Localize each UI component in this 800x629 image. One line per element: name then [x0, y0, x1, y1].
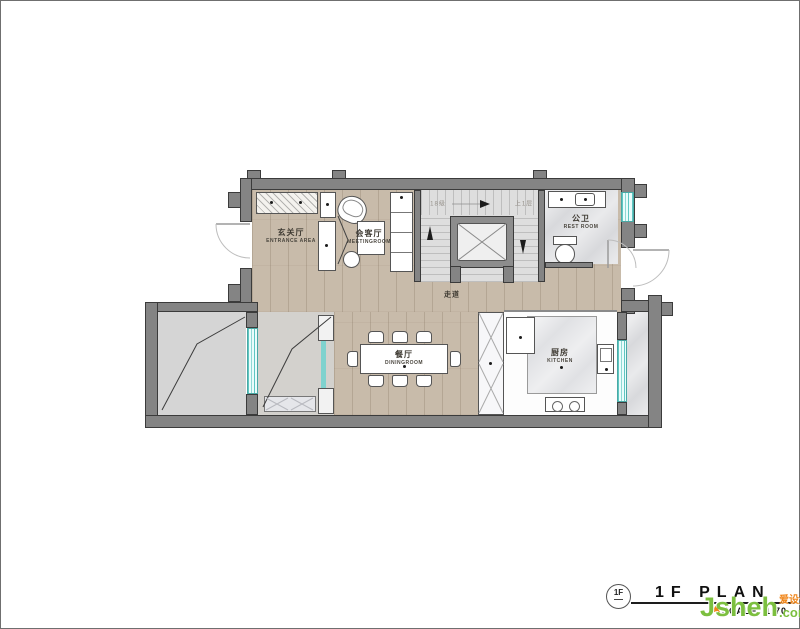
label-restroom-en: REST ROOM — [564, 224, 599, 230]
window-kitchen — [617, 340, 627, 402]
wall-bottom — [145, 415, 662, 428]
dining-chair — [368, 375, 384, 387]
dining-chair — [368, 331, 384, 343]
window-restroom — [621, 192, 634, 222]
label-corridor: 走道 — [444, 292, 460, 301]
pilaster — [332, 170, 346, 179]
label-restroom: 公卫 REST ROOM — [564, 214, 599, 230]
label-entrance-cn: 玄关厅 — [266, 228, 316, 238]
meeting-stool — [343, 251, 360, 268]
wall-lower-left-top — [145, 302, 258, 312]
door-arc-entrance — [216, 224, 250, 258]
stair-up-note: 上1层 — [515, 199, 533, 208]
cabinet-dot — [325, 244, 328, 247]
elevator-jamb-left — [450, 266, 461, 283]
door-arc-right — [633, 250, 669, 286]
cabinet-dot — [489, 362, 492, 365]
label-restroom-cn: 公卫 — [564, 214, 599, 224]
wall-kitchen-window-bottom — [617, 402, 627, 415]
wall-window-jamb — [246, 312, 258, 328]
wall-top — [240, 178, 635, 190]
shelf-dot — [400, 196, 403, 199]
pilaster — [247, 170, 261, 179]
bubble-divider — [614, 599, 623, 600]
cabinet-dot — [326, 203, 329, 206]
label-kitchen-en: KITCHEN — [547, 358, 573, 364]
glass-partition — [321, 341, 326, 388]
dining-chair — [416, 331, 432, 343]
column — [318, 315, 334, 341]
dining-chair — [450, 351, 461, 367]
wall-left-lower — [145, 302, 158, 428]
closet-dot — [270, 201, 273, 204]
pilaster — [533, 170, 547, 179]
wall-left-upper-a — [240, 178, 252, 222]
wall-kitchen-window-top — [617, 312, 627, 340]
plan-number-bubble: 1F — [606, 584, 631, 609]
label-meeting-en: MEETINGROOM — [347, 239, 391, 245]
wall-right-lower — [648, 295, 662, 428]
toilet-bowl — [555, 244, 575, 264]
label-corridor-cn: 走道 — [444, 292, 460, 301]
watermark-suffix: .com — [779, 606, 800, 619]
dining-chair — [392, 331, 408, 343]
kitchen-dot — [560, 366, 563, 369]
label-dining: 餐厅 DININGROOM — [385, 350, 423, 366]
dining-chair — [347, 351, 358, 367]
bench — [264, 396, 316, 412]
sink-dot — [584, 198, 587, 201]
bookshelf — [390, 192, 413, 272]
label-dining-cn: 餐厅 — [385, 350, 423, 360]
column — [318, 388, 334, 414]
pilaster — [228, 284, 241, 302]
wall-stair-left — [414, 190, 421, 282]
stair-steps-note: 18级 — [430, 199, 446, 208]
label-entrance-en: ENTRANCE AREA — [266, 238, 316, 244]
watermark: Jsheh 爱设汇 .com — [700, 596, 800, 619]
pilaster — [228, 192, 241, 208]
dining-chair — [392, 375, 408, 387]
label-dining-en: DININGROOM — [385, 360, 423, 366]
kitchen-partition-line — [504, 310, 617, 312]
plan-number: 1F — [607, 588, 630, 597]
label-meeting: 会客厅 MEETINGROOM — [347, 229, 391, 245]
sink-dot — [605, 368, 608, 371]
fridge-dot — [519, 336, 522, 339]
elevator-jamb-right — [503, 266, 514, 283]
wall-stair-right — [538, 190, 545, 282]
label-kitchen: 厨房 KITCHEN — [547, 348, 573, 364]
drawing-canvas: 玄关厅 ENTRANCE AREA 会客厅 MEETINGROOM 公卫 RES… — [0, 0, 800, 629]
pilaster — [634, 184, 647, 198]
dining-chair — [416, 375, 432, 387]
label-meeting-cn: 会客厅 — [347, 229, 391, 239]
vanity-dot — [560, 198, 563, 201]
elevator-car — [457, 223, 507, 261]
wall-window-jamb — [246, 394, 258, 415]
label-kitchen-cn: 厨房 — [547, 348, 573, 358]
wall-restroom-bottom — [545, 262, 593, 268]
pilaster — [661, 302, 673, 316]
floor-right-terrace — [627, 312, 648, 415]
label-entrance: 玄关厅 ENTRANCE AREA — [266, 228, 316, 244]
floor-left-room — [158, 312, 246, 415]
entrance-closet — [256, 192, 318, 214]
closet-dot — [299, 201, 302, 204]
pilaster — [634, 224, 647, 238]
watermark-brand: Jsheh — [700, 596, 778, 619]
window-left-lower — [247, 328, 258, 394]
cooktop — [545, 397, 585, 412]
